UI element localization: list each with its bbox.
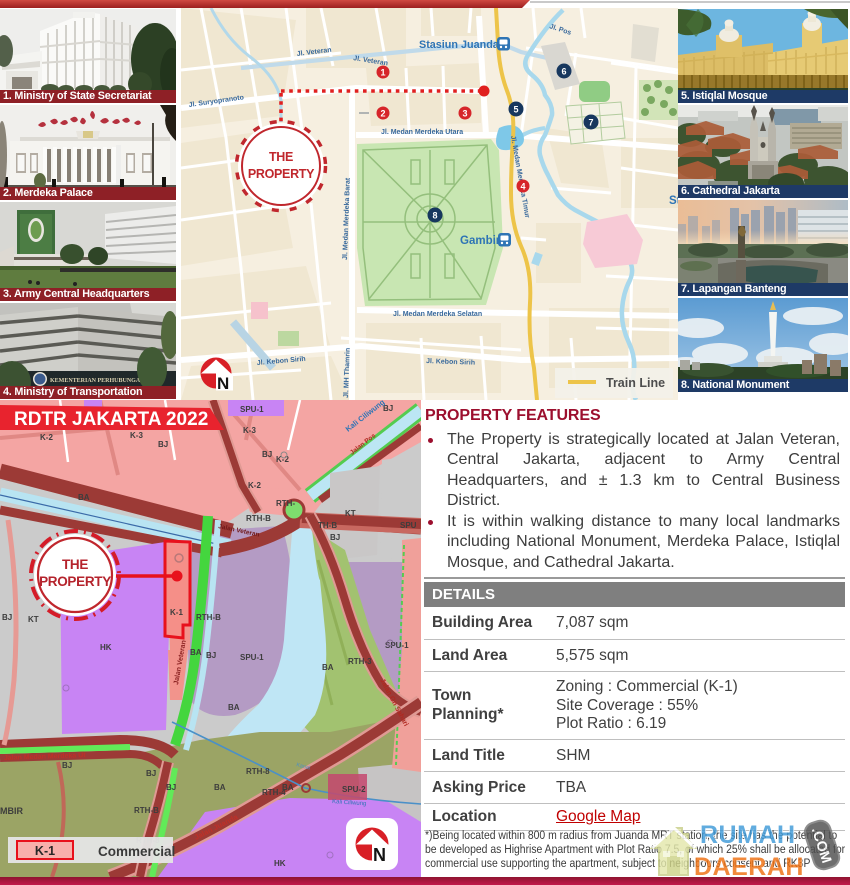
svg-text:RTH-B: RTH-B	[246, 514, 271, 523]
svg-text:THE: THE	[269, 150, 293, 164]
svg-text:RUMAH: RUMAH	[700, 821, 796, 849]
svg-text:BJ: BJ	[146, 769, 156, 778]
svg-text:Train Line: Train Line	[606, 376, 665, 390]
svg-text:K-1: K-1	[35, 844, 55, 858]
svg-text:KT: KT	[28, 615, 39, 624]
svg-text:RTH-B: RTH-B	[134, 806, 159, 815]
svg-text:DAERAH: DAERAH	[694, 853, 804, 880]
svg-text:RDTR JAKARTA 2022: RDTR JAKARTA 2022	[14, 409, 208, 430]
svg-text:6: 6	[561, 67, 566, 77]
svg-text:MBIR: MBIR	[0, 806, 23, 816]
svg-text:BA: BA	[214, 783, 226, 792]
svg-text:BA: BA	[282, 783, 294, 792]
svg-text:K-2: K-2	[276, 455, 289, 464]
svg-text:K-3: K-3	[130, 431, 143, 440]
svg-text:2: 2	[380, 109, 385, 119]
svg-text:K-2: K-2	[40, 433, 53, 442]
svg-text:BJ: BJ	[330, 533, 340, 542]
svg-text:BJ: BJ	[2, 613, 12, 622]
svg-text:8: 8	[432, 211, 437, 221]
svg-text:PROPERTY: PROPERTY	[248, 167, 315, 181]
svg-text:Commercial: Commercial	[98, 844, 175, 859]
svg-text:SPU-2: SPU-2	[342, 785, 366, 794]
svg-text:BJ: BJ	[262, 450, 272, 459]
svg-text:RTH-B: RTH-B	[196, 613, 221, 622]
svg-text:BJ: BJ	[166, 783, 176, 792]
svg-text:SPU: SPU	[400, 521, 417, 530]
svg-text:HK: HK	[100, 643, 112, 652]
svg-text:5: 5	[513, 105, 518, 115]
svg-text:4: 4	[520, 182, 525, 192]
svg-text:BA: BA	[322, 663, 334, 672]
svg-text:Jl. Medan Merdeka Utara: Jl. Medan Merdeka Utara	[381, 129, 463, 136]
svg-text:N: N	[373, 845, 386, 865]
svg-text:BA: BA	[78, 493, 90, 502]
svg-text:BJ: BJ	[62, 761, 72, 770]
svg-text:Jl. Medan Merdeka Selatan: Jl. Medan Merdeka Selatan	[393, 311, 482, 318]
svg-text:BJ: BJ	[206, 651, 216, 660]
svg-text:SPU-1: SPU-1	[240, 653, 264, 662]
svg-text:Gambir: Gambir	[460, 235, 501, 247]
svg-text:K-2: K-2	[248, 481, 261, 490]
svg-text:TH-B: TH-B	[318, 521, 337, 530]
svg-text:KT: KT	[345, 509, 356, 518]
svg-text:SPU-1: SPU-1	[240, 405, 264, 414]
svg-text:N: N	[217, 374, 229, 393]
svg-text:BA: BA	[190, 648, 202, 657]
svg-text:BA: BA	[228, 703, 240, 712]
svg-text:KEMENTERIAN PERHUBUNGAN: KEMENTERIAN PERHUBUNGAN	[50, 378, 145, 384]
svg-text:7: 7	[588, 118, 593, 128]
svg-text:1: 1	[380, 68, 385, 78]
svg-text:Stasiun Juanda: Stasiun Juanda	[419, 39, 500, 51]
svg-text:RTH-8: RTH-8	[246, 767, 270, 776]
svg-text:BJ: BJ	[158, 440, 168, 449]
svg-text:RTH-3: RTH-3	[348, 657, 372, 666]
svg-text:RTH-: RTH-	[276, 499, 295, 508]
svg-text:THE: THE	[62, 557, 88, 572]
svg-text:PROPERTY: PROPERTY	[39, 574, 111, 589]
svg-text:3: 3	[462, 109, 467, 119]
svg-text:HK: HK	[274, 859, 286, 868]
svg-text:K-3: K-3	[243, 426, 256, 435]
svg-text:K-1: K-1	[170, 608, 183, 617]
svg-text:St: St	[669, 195, 678, 207]
